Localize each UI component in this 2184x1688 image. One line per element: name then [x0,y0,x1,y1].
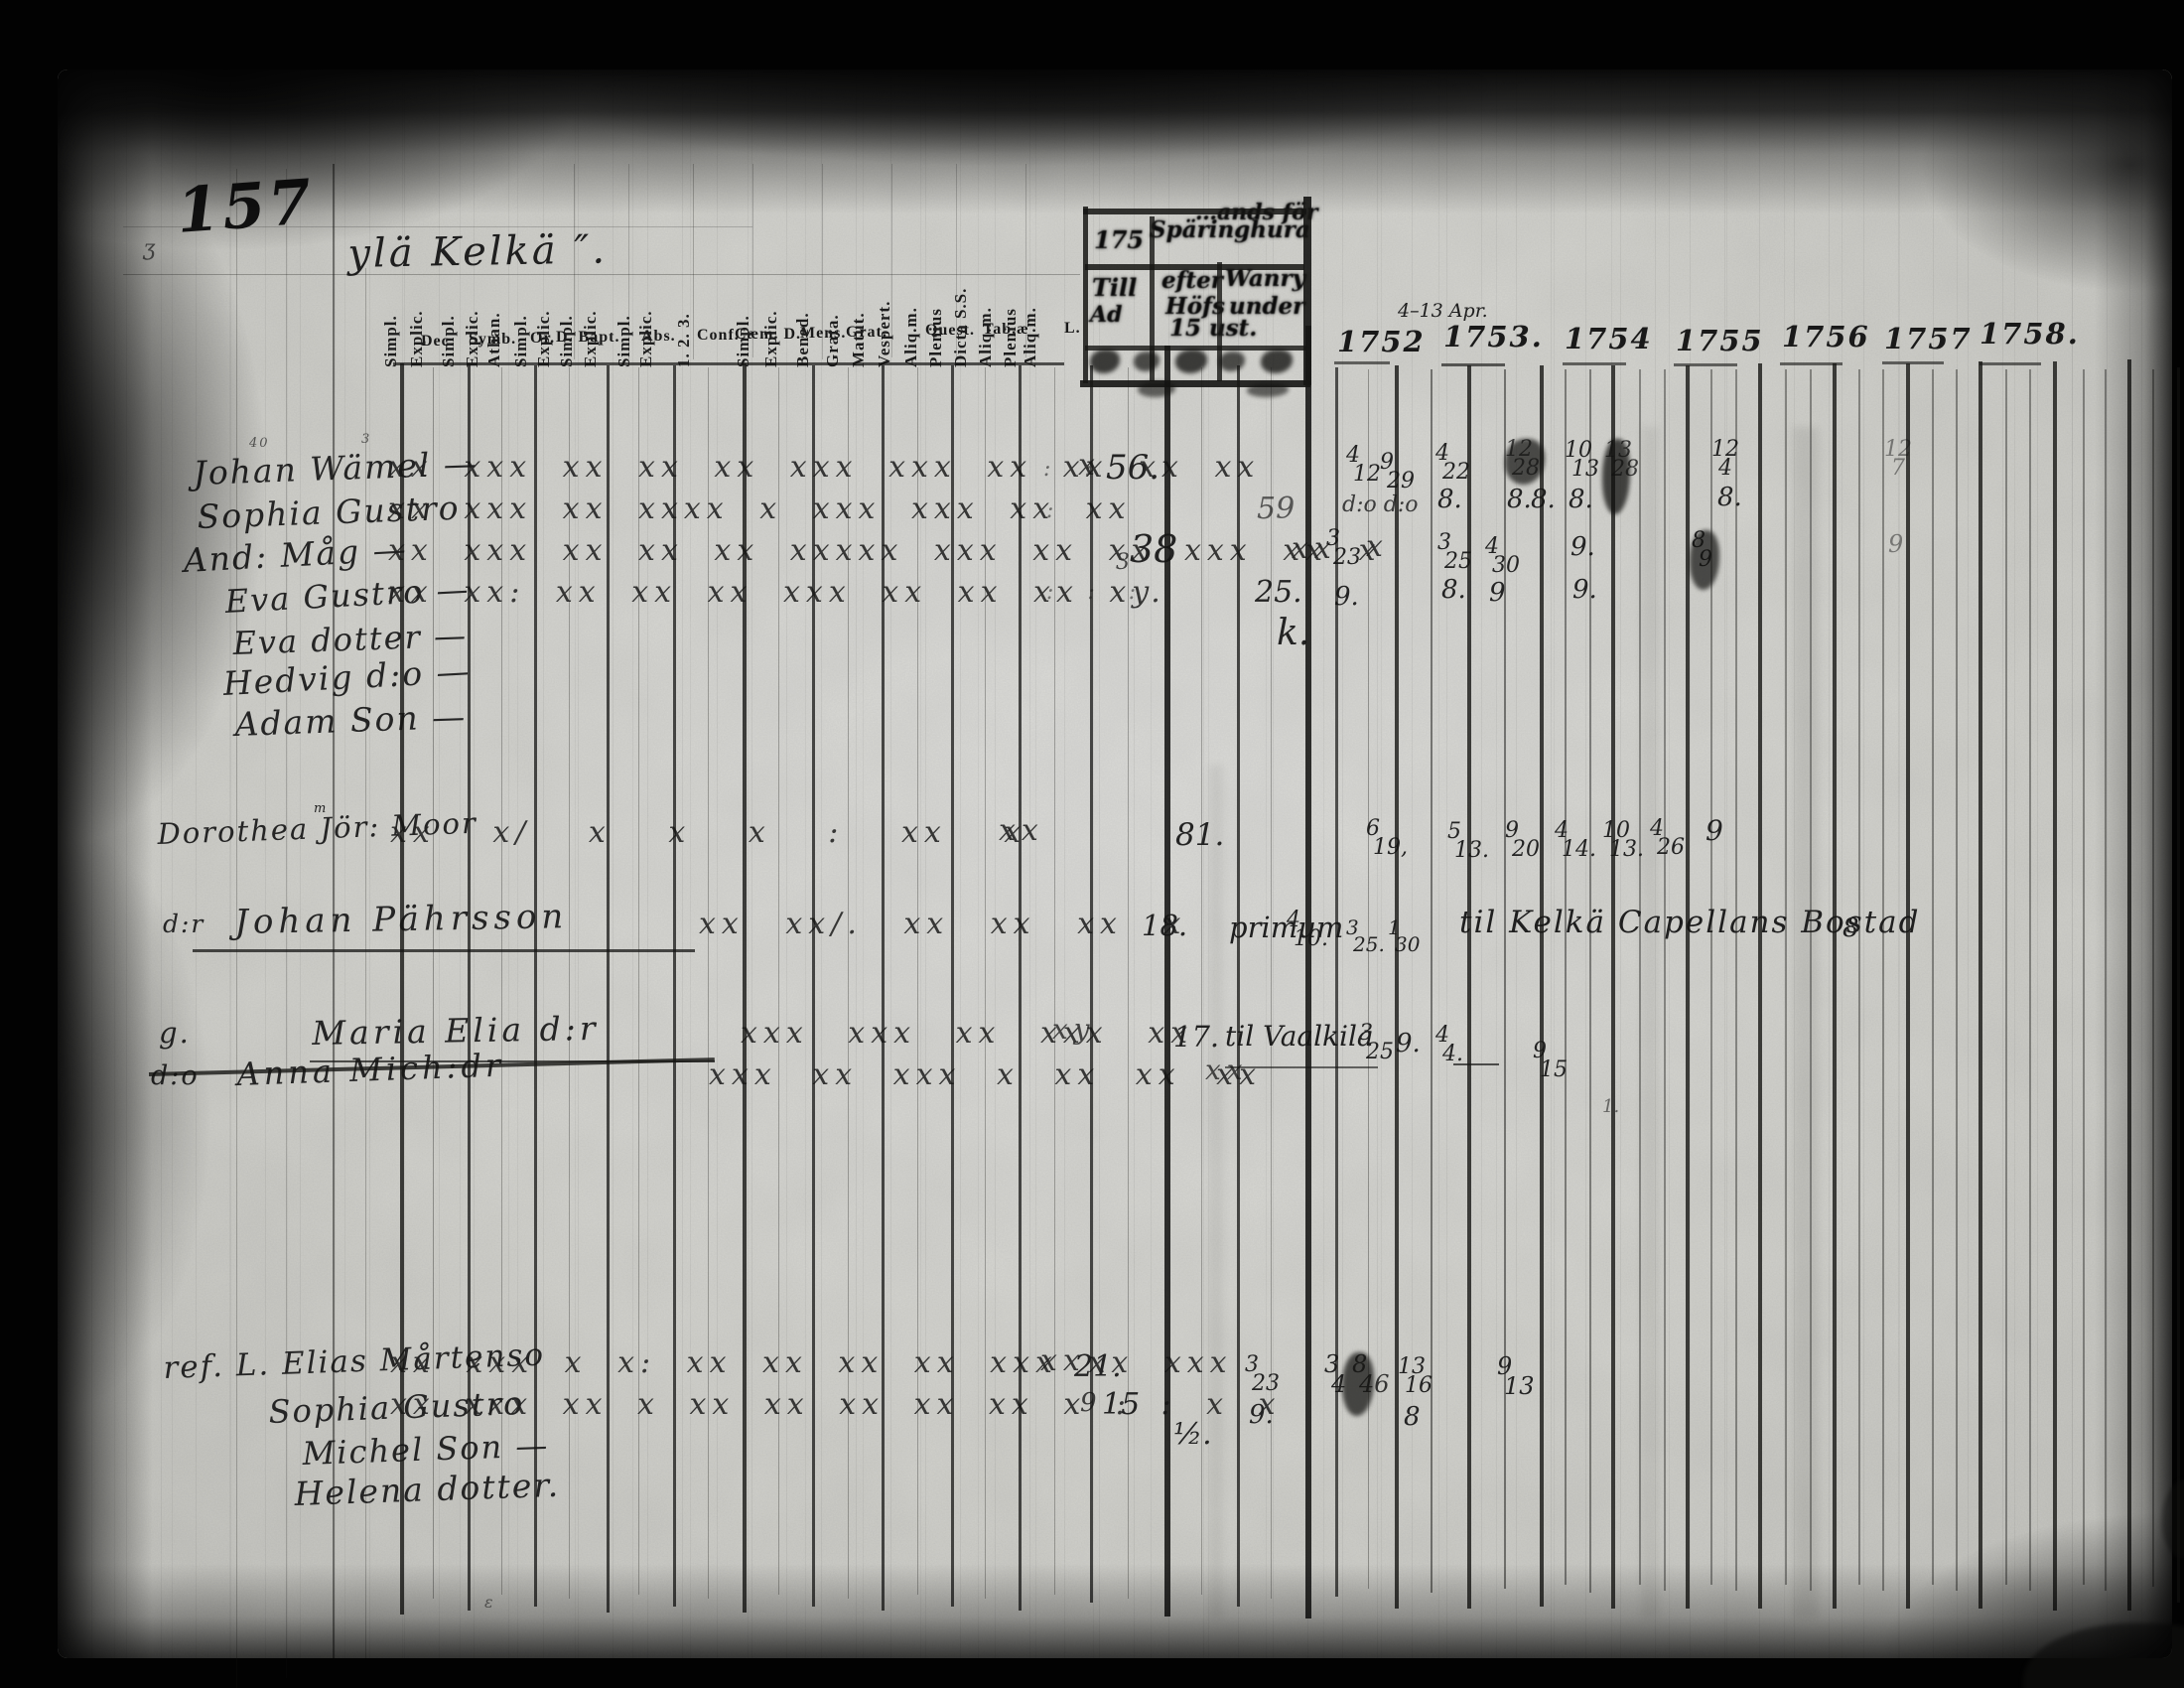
header-sublabel: 1. 2. 3. [675,276,692,367]
row-name: 40 [249,437,270,450]
ruled-line-horizontal [1334,361,1390,364]
header-sublabel: Matut. [850,276,867,367]
handwritten-mark: 8. [1717,485,1742,510]
ink-bleed-smear [1641,427,1659,1618]
ruled-line-vertical [1271,367,1272,1599]
date-fraction: 44. [1435,1027,1463,1063]
ruled-line-vertical [708,367,709,1599]
header-sublabel: Bened. [794,276,811,367]
ruled-line-vertical [1956,369,1958,1591]
year-label: 1756 [1782,323,1870,352]
ruled-line-vertical [693,164,694,359]
annotation-box-text: 175 [1094,228,1144,252]
row-name: Maria Elia d:r [312,1012,600,1050]
header-label: L. [1064,321,1081,337]
attendance-x-marks: : [1046,500,1059,522]
ruled-line-horizontal [1882,361,1944,364]
header-sublabel: Aliq.m. [977,276,994,367]
ruled-line-vertical [2029,369,2031,1591]
ruled-line-vertical [752,164,753,357]
header-sublabel: Explic. [408,276,425,367]
date-fraction: 619, [1366,820,1408,857]
ink-layer: 157 ylä Kelkä ″. Dec.Symb.Or.D. Bapt.Abs… [58,70,2172,1658]
attendance-x-marks: xx xxx xx x xx xx xx xx xx x : : x x [390,1390,1281,1420]
date-fraction: 920 [1505,822,1540,859]
date-fraction: 913 [1497,1356,1535,1397]
ruled-line-vertical [951,365,954,1607]
ruled-line-vertical [574,164,575,359]
ruled-line-vertical [1467,365,1471,1609]
ruled-line-vertical [400,363,404,1615]
year-label: 1753. [1443,323,1544,352]
ruled-line-vertical [822,164,823,359]
ruled-line-vertical [1758,363,1762,1609]
year-range-note: 4–13 Apr. [1398,302,1488,321]
handwritten-mark: 9. [1396,1031,1421,1056]
ruled-line-vertical [956,164,957,359]
handwritten-mark: 8 [1843,915,1859,941]
ruled-line-vertical [1785,369,1787,1585]
ruled-line-horizontal [193,949,695,952]
ruled-line-vertical [2152,369,2154,1587]
header-sublabel: Explic. [762,276,779,367]
handwritten-mark: 21. [1074,1352,1122,1382]
ink-blot [1247,383,1289,397]
ruled-line-vertical [882,365,885,1611]
ruled-line-vertical [778,367,779,1595]
header-sublabel: Simpl. [440,276,457,367]
ink-blot [1261,350,1293,373]
ruled-line-vertical [2083,369,2085,1585]
ink-blot [1090,350,1120,373]
handwritten-mark: 8 [1404,1404,1421,1430]
page-number: 157 [175,171,316,242]
ruled-line-vertical [673,365,676,1607]
header-sublabel: Athan. [485,276,502,367]
ruled-line-vertical [1504,369,1506,1589]
date-fraction: 412 [1346,447,1381,484]
ruled-line-vertical [1565,369,1567,1585]
header-sublabel: Dicta S.S. [952,276,969,367]
header-sublabel: Simpl. [512,276,529,367]
ruled-line-vertical [534,365,537,1607]
handwritten-mark: 38 [1130,530,1177,568]
date-fraction: 1013. [1602,822,1644,859]
ruled-line-vertical [2127,359,2131,1611]
ruled-line-vertical [607,365,610,1613]
ruled-line-vertical [1589,369,1591,1593]
ink-blot [1342,1352,1374,1416]
date-fraction: 430 [1485,538,1520,575]
date-fraction: 1316 [1398,1358,1433,1395]
ruled-line-vertical [1686,365,1690,1609]
microfilm-scan: 157 ylä Kelkä ″. Dec.Symb.Or.D. Bapt.Abs… [0,0,2184,1688]
attendance-x-marks: xxx xxx xx xxx xx [741,1019,1193,1049]
ruled-line-vertical [1237,365,1240,1607]
ruled-line-vertical [1164,346,1170,1617]
ruled-line-vertical [2177,367,2180,1603]
date-fraction: 325 [1359,1025,1394,1061]
ruled-line-vertical [1128,367,1129,1599]
ruled-line-vertical [2053,361,2057,1611]
ruled-line-horizontal [123,274,1080,275]
year-label: 1758. [1979,320,2080,349]
ruled-line-vertical [501,367,502,1595]
date-fraction: 325. [1346,919,1385,953]
ink-blot [1134,352,1160,371]
header-sublabel: Simpl. [735,276,751,367]
handwritten-mark: 9 [1080,1390,1097,1416]
handwritten-mark: d:o d:o [1342,494,1418,516]
ruled-line-vertical [917,367,918,1595]
header-sublabel: Aliq.m. [1022,276,1038,367]
ruled-line-horizontal [1085,264,1304,270]
ink-blot [1690,530,1719,590]
year-label: 1755 [1676,327,1764,355]
header-sublabel: Explic. [464,276,480,367]
date-fraction: 1013 [1565,442,1599,479]
row-name: Michel Son — [302,1429,550,1470]
header-sublabel: Vespert. [876,276,892,367]
handwritten-mark: 9. [1572,577,1597,603]
handwritten-mark: 9 [1706,817,1723,845]
ruled-line-horizontal [1225,1066,1378,1068]
ruled-line-vertical [1090,365,1093,1603]
handwritten-mark: 56. [1106,451,1160,485]
ruled-line-vertical [1664,369,1666,1591]
ruled-line-vertical [1395,365,1399,1609]
annotation-box-text: Wanry [1225,267,1305,290]
ruled-line-vertical [1083,207,1088,383]
handwritten-mark: 8. [1437,487,1462,512]
annotation-box-text: 15 ust. [1169,317,1257,340]
handwritten-mark: 15 [1102,1390,1140,1420]
ruled-line-vertical [333,164,335,1658]
year-label: 1757 [1884,325,1973,353]
ruled-line-horizontal [1780,362,1843,365]
attendance-x-marks: xx xxx xx xx xx xxxxx xxx xx xx xxx xx x [388,536,1382,566]
handwritten-mark: 9 [1888,532,1903,556]
row-name: d:r [163,912,205,936]
date-fraction: 323 [1326,530,1361,567]
ruled-line-horizontal [1453,1063,1499,1065]
ruled-line-horizontal [1441,363,1505,366]
ruled-line-vertical [1979,361,1982,1609]
year-label: 1754 [1565,325,1653,353]
row-name: 3 [361,433,371,446]
ink-bleed-smear [1209,765,1223,1618]
ruled-line-vertical [433,367,434,1599]
handwritten-mark: ε [484,1595,493,1611]
header-sublabel: Simpl. [558,276,575,367]
year-label: 1752 [1337,328,1426,356]
ruled-line-horizontal [1979,362,2041,365]
ruled-line-vertical [743,363,747,1613]
handwritten-mark: til Vaalkila [1225,1023,1374,1051]
header-sublabel: Aliq.m. [902,276,919,367]
ruled-line-vertical [1906,363,1910,1609]
header-sublabel: Explic. [637,276,654,367]
header-sublabel: Explic. [582,276,599,367]
ruled-line-vertical [2105,369,2107,1591]
header-sublabel: Grata. [824,276,841,367]
ledger-page: 157 ylä Kelkä ″. Dec.Symb.Or.D. Bapt.Abs… [58,70,2172,1658]
ruled-line-horizontal [123,226,752,227]
ruled-line-vertical [569,367,570,1599]
ink-blot [2023,1623,2184,1688]
page-title: ylä Kelkä ″. [347,229,608,274]
annotation-box-text: Ad [1090,304,1122,326]
handwritten-mark: 8. [1441,577,1466,603]
header-sublabel: Simpl. [615,276,632,367]
row-name: And: Måg — [183,532,408,577]
ruled-line-vertical [1431,369,1433,1593]
ruled-line-horizontal [1563,362,1626,365]
ink-bleed-smear [1793,427,1819,1618]
date-fraction: 323 [1245,1356,1280,1393]
ink-blot [1219,352,1245,371]
ink-blot [1602,439,1630,514]
ink-blot [2162,1479,2184,1559]
ink-blot [1175,350,1207,373]
handwritten-mark: ½. [1173,1420,1212,1450]
header-sublabel: Explic. [535,276,552,367]
handwritten-mark: ʒ [143,238,155,260]
handwritten-mark: 9. [1570,534,1595,560]
ruled-line-vertical [638,367,639,1595]
annotation-box-text: Späringhura [1150,218,1310,241]
handwritten-mark: 8. [1507,487,1532,512]
header-sublabel: Plenius [1002,276,1019,367]
row-name: g. [159,1019,191,1048]
annotation-box-text: Till [1092,276,1137,300]
handwritten-mark: 25. [1255,578,1302,608]
ruled-line-vertical [1858,369,1860,1585]
handwritten-mark: 59 [1257,494,1295,524]
ruled-line-horizontal [1674,363,1737,366]
ruled-line-vertical [1303,197,1311,385]
ruled-line-vertical [468,365,471,1611]
ruled-line-vertical [628,164,629,359]
ruled-line-vertical [1305,326,1311,1618]
ruled-line-vertical [1932,369,1934,1585]
date-fraction: 422 [1435,445,1470,482]
row-name: m [314,802,328,815]
ruled-line-horizontal [393,362,1064,365]
ruled-line-vertical [848,367,849,1599]
attendance-x-marks: x [1366,532,1389,562]
ruled-line-vertical [1833,363,1837,1609]
ruled-line-vertical [1611,365,1615,1609]
ruled-line-vertical [1735,369,1737,1591]
ruled-line-vertical [1201,367,1202,1595]
annotation-box-text: efter [1161,269,1223,292]
ruled-line-vertical [365,268,366,1658]
ruled-line-vertical [1335,367,1338,1597]
ruled-line-vertical [1882,369,1884,1591]
ruled-line-horizontal [1083,209,1306,214]
ruled-line-vertical [891,164,892,357]
ruled-line-vertical [1019,365,1022,1611]
ruled-line-vertical [985,367,986,1599]
ruled-line-vertical [1540,365,1544,1607]
ruled-line-vertical [2005,369,2007,1585]
ruled-line-vertical [812,365,815,1607]
header-sublabel: Simpl. [382,276,399,367]
date-fraction: 915 [1533,1043,1568,1079]
attendance-x-marks: xx xx/. xx xx xx x [699,910,1186,939]
date-fraction: 130 [1388,919,1420,953]
ruled-line-vertical [1025,164,1026,357]
ruled-line-vertical [1054,367,1055,1595]
ruled-line-vertical [286,169,287,1678]
header-sublabel: Plenius [927,276,944,367]
ruled-line-vertical [236,169,237,1688]
